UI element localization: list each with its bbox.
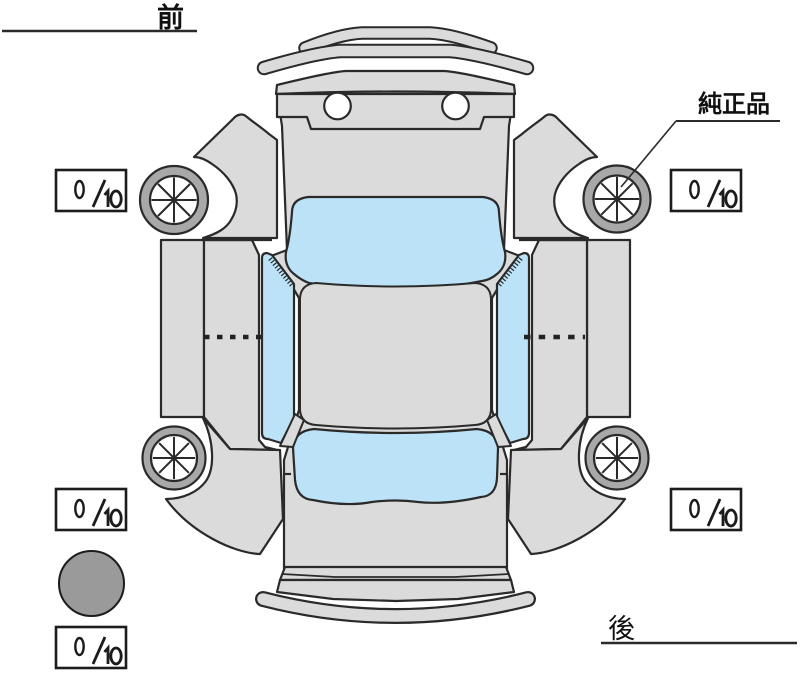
svg-text:前: 前: [157, 2, 184, 33]
svg-text:後: 後: [608, 614, 635, 644]
svg-text:純正品: 純正品: [698, 90, 770, 118]
